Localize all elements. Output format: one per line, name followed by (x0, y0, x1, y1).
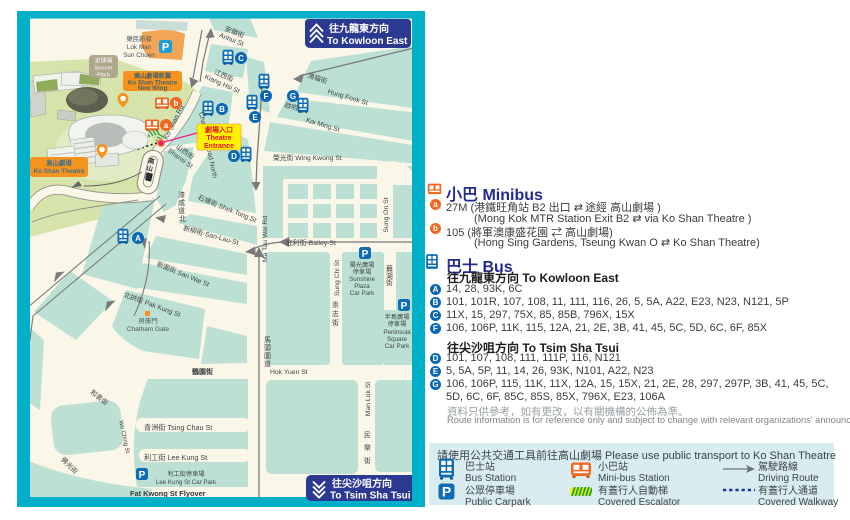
svg-text:Sung Chi St: Sung Chi St (334, 260, 341, 296)
svg-text:漆: 漆 (178, 190, 185, 199)
svg-text:Car Park: Car Park (385, 343, 410, 350)
svg-text:青洲街 Tsing Chau St: 青洲街 Tsing Chau St (144, 423, 212, 432)
svg-text:Lee Kung St Car Park: Lee Kung St Car Park (156, 479, 217, 486)
svg-text:劇場入口: 劇場入口 (204, 125, 233, 134)
svg-text:湖: 湖 (386, 271, 393, 280)
svg-text:民: 民 (364, 431, 371, 439)
svg-text:崇: 崇 (332, 301, 339, 309)
svg-text:利工街停車場: 利工街停車場 (167, 470, 204, 478)
svg-text:庇利街-Bailey-St: 庇利街-Bailey-St (286, 238, 336, 247)
svg-text:Car Park: Car Park (350, 290, 375, 297)
svg-text:停車場: 停車場 (388, 320, 407, 328)
svg-text:街: 街 (364, 456, 371, 465)
svg-text:陽光廣場: 陽光廣場 (350, 261, 375, 269)
svg-text:To Tsim Sha Tsui: To Tsim Sha Tsui (330, 491, 411, 502)
svg-text:Lok Man: Lok Man (127, 44, 152, 51)
svg-text:Pitch: Pitch (97, 73, 110, 79)
svg-text:道: 道 (178, 206, 185, 215)
svg-text:咸: 咸 (178, 198, 185, 207)
svg-text:北: 北 (179, 215, 186, 223)
svg-text:G: G (290, 92, 296, 101)
svg-text:道: 道 (264, 359, 271, 368)
svg-text:利工街 Lee Kung St: 利工街 Lee Kung St (144, 453, 207, 462)
svg-text:蕪: 蕪 (386, 264, 393, 273)
svg-text:Sunshine: Sunshine (349, 276, 375, 283)
svg-text:Sun Chuen: Sun Chuen (123, 52, 155, 59)
svg-text:Theatre: Theatre (206, 135, 231, 142)
svg-text:Soccer: Soccer (94, 66, 112, 72)
svg-text:b: b (174, 99, 179, 108)
svg-text:往尖沙咀方向: 往尖沙咀方向 (332, 477, 392, 490)
svg-text:街: 街 (386, 278, 393, 287)
svg-text:往九龍東方向: 往九龍東方向 (329, 22, 389, 35)
svg-text:P: P (162, 42, 169, 54)
svg-text:Plaza: Plaza (354, 283, 370, 290)
svg-text:Man Lok St: Man Lok St (365, 382, 372, 416)
svg-text:P: P (401, 301, 408, 312)
svg-text:A: A (135, 234, 141, 243)
svg-text:F: F (264, 92, 269, 101)
svg-text:Fat Kwong St Flyover: Fat Kwong St Flyover (130, 489, 206, 498)
svg-text:停車場: 停車場 (353, 268, 372, 276)
svg-text:P: P (442, 484, 451, 500)
svg-text:足球場: 足球場 (95, 57, 113, 65)
svg-text:高山劇場: 高山劇場 (46, 158, 72, 167)
svg-text:圍: 圍 (264, 352, 271, 360)
svg-text:街: 街 (332, 318, 339, 327)
svg-text:D: D (231, 152, 237, 161)
svg-text:Ko Shan Theatre: Ko Shan Theatre (34, 168, 85, 175)
svg-text:志: 志 (332, 309, 339, 318)
svg-text:Hok Yuen St: Hok Yuen St (270, 369, 308, 376)
svg-text:鶴園街: 鶴園街 (192, 367, 213, 376)
svg-text:馬: 馬 (264, 336, 271, 344)
svg-text:P: P (362, 249, 369, 260)
svg-text:New Wing: New Wing (138, 85, 168, 92)
svg-text:B: B (219, 105, 225, 114)
svg-text:樂民新邨: 樂民新邨 (126, 34, 152, 43)
svg-text:Ma Tau Wai Rd: Ma Tau Wai Rd (262, 216, 269, 262)
svg-text:Square: Square (387, 336, 408, 343)
svg-text:a: a (164, 121, 169, 130)
svg-text:Entrance: Entrance (204, 143, 234, 150)
svg-text:Sung On St: Sung On St (383, 197, 390, 232)
svg-text:Chatham Gate: Chatham Gate (127, 326, 170, 333)
svg-text:Peninsula: Peninsula (383, 329, 411, 336)
svg-text:E: E (252, 113, 258, 122)
svg-text:To Kowloon East: To Kowloon East (327, 36, 408, 47)
svg-text:半島廣場: 半島廣場 (385, 313, 410, 321)
svg-text:樂: 樂 (364, 443, 371, 452)
svg-text:貝倈門: 貝倈門 (138, 316, 158, 325)
svg-text:頭: 頭 (264, 344, 271, 352)
svg-text:C: C (238, 54, 244, 63)
svg-text:P: P (139, 470, 146, 481)
svg-text:榮光街 Wing Kwong St: 榮光街 Wing Kwong St (273, 153, 342, 162)
